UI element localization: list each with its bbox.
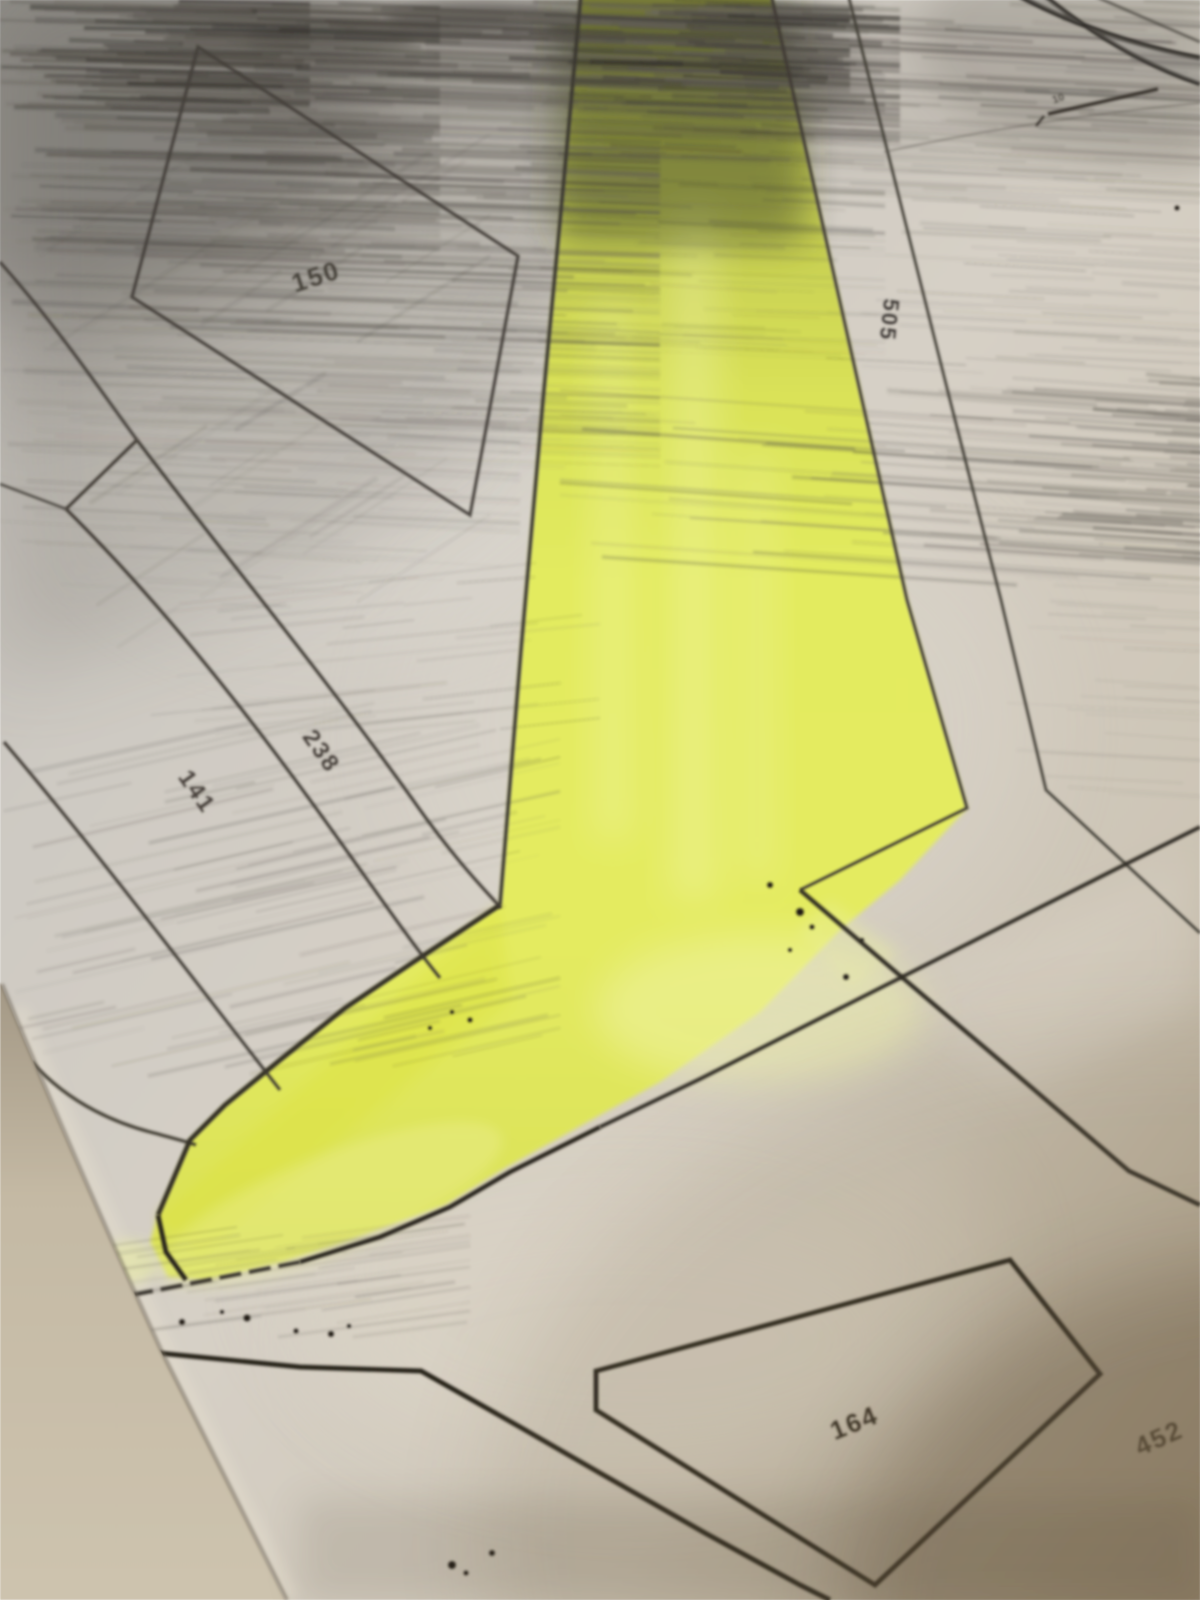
svg-text:505: 505 [875,297,904,342]
